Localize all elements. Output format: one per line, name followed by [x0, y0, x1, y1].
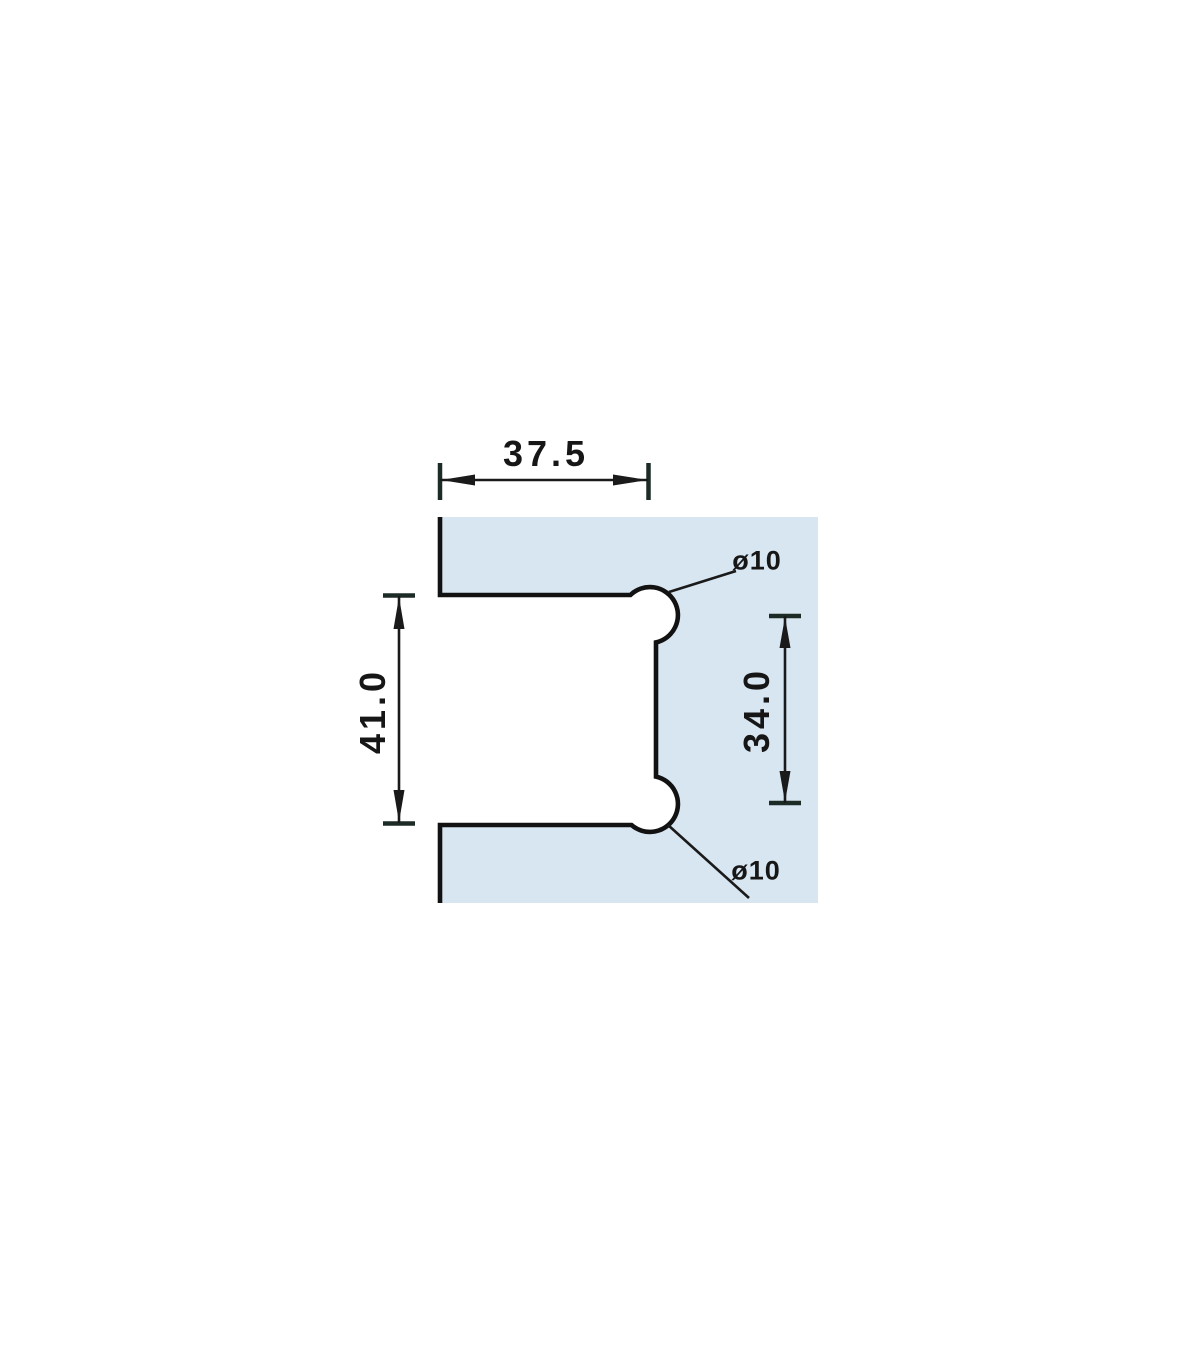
diameter-label-top-hole: ø10 [732, 548, 782, 575]
arrow-left-icon [441, 475, 475, 486]
dimension-label-hole-spacing: 34.0 [739, 667, 775, 753]
dimension-label-notch-height: 41.0 [355, 668, 391, 754]
diameter-label-bottom-hole: ø10 [731, 858, 781, 885]
arrow-up-icon [394, 597, 405, 629]
arrow-right-icon [613, 475, 648, 486]
glass-cutout-diagram [0, 0, 1200, 1372]
dimension-label-notch-width: 37.5 [503, 436, 589, 472]
drawing-canvas: 37.5 41.0 34.0 ø10 ø10 [0, 0, 1200, 1372]
arrow-down-icon [394, 790, 405, 822]
notch-cutout [440, 587, 678, 832]
